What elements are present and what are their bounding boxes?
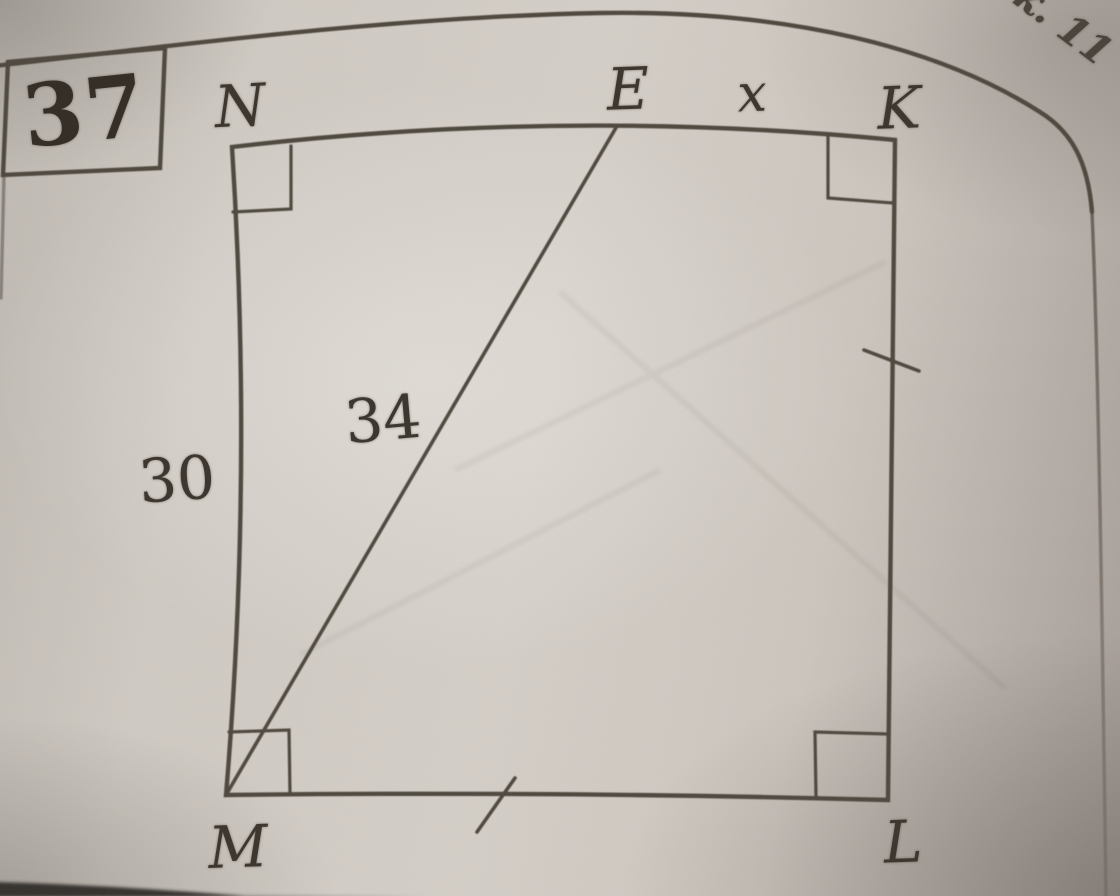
vertex-label-e: E [606,59,650,118]
photographed-book-page: 37 N E K M L 30 34 x ок. 11 [0,0,1120,896]
vertex-label-k: K [876,78,921,137]
vertex-label-m: M [207,817,268,877]
measurement-side-nm: 30 [137,447,217,512]
measurement-segment-ek: x [736,68,767,121]
vertex-label-n: N [213,76,267,137]
problem-number: 37 [19,63,151,161]
measurement-segment-me: 34 [342,387,423,453]
vertex-label-l: L [883,812,924,871]
